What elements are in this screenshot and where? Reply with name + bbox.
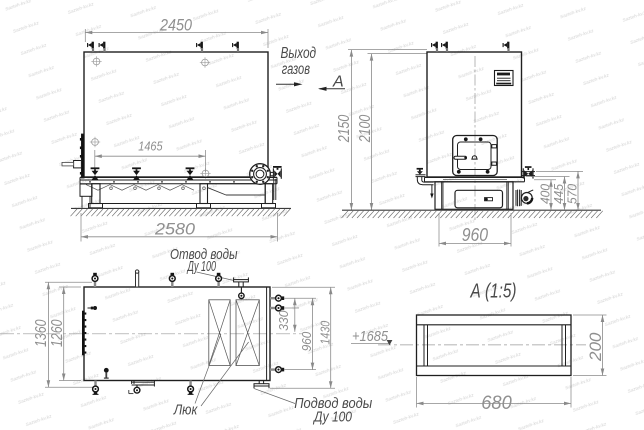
svg-text:Люк: Люк bbox=[173, 402, 198, 419]
svg-text:Выход: Выход bbox=[281, 45, 317, 62]
svg-text:2580: 2580 bbox=[154, 220, 196, 239]
svg-text:2150: 2150 bbox=[336, 114, 353, 143]
svg-text:2100: 2100 bbox=[357, 114, 374, 143]
svg-text:570: 570 bbox=[566, 184, 580, 204]
svg-text:газов: газов bbox=[282, 61, 310, 78]
svg-text:960: 960 bbox=[299, 331, 314, 351]
svg-text:+1685: +1685 bbox=[352, 328, 389, 345]
svg-text:680: 680 bbox=[481, 393, 512, 414]
svg-text:1465: 1465 bbox=[138, 139, 163, 154]
svg-text:1260: 1260 bbox=[49, 319, 66, 347]
svg-text:Ду 100: Ду 100 bbox=[186, 259, 216, 275]
svg-text:А: А bbox=[332, 74, 344, 91]
svg-text:1360: 1360 bbox=[33, 319, 50, 347]
svg-text:1430: 1430 bbox=[318, 320, 333, 344]
svg-text:А (1:5): А (1:5) bbox=[470, 281, 517, 303]
svg-text:330: 330 bbox=[276, 310, 291, 331]
svg-text:400: 400 bbox=[539, 184, 553, 204]
svg-text:2450: 2450 bbox=[159, 15, 192, 34]
svg-text:200: 200 bbox=[586, 332, 605, 362]
svg-text:960: 960 bbox=[462, 225, 488, 245]
svg-text:Ду 100: Ду 100 bbox=[312, 409, 352, 426]
svg-text:445: 445 bbox=[552, 184, 566, 204]
